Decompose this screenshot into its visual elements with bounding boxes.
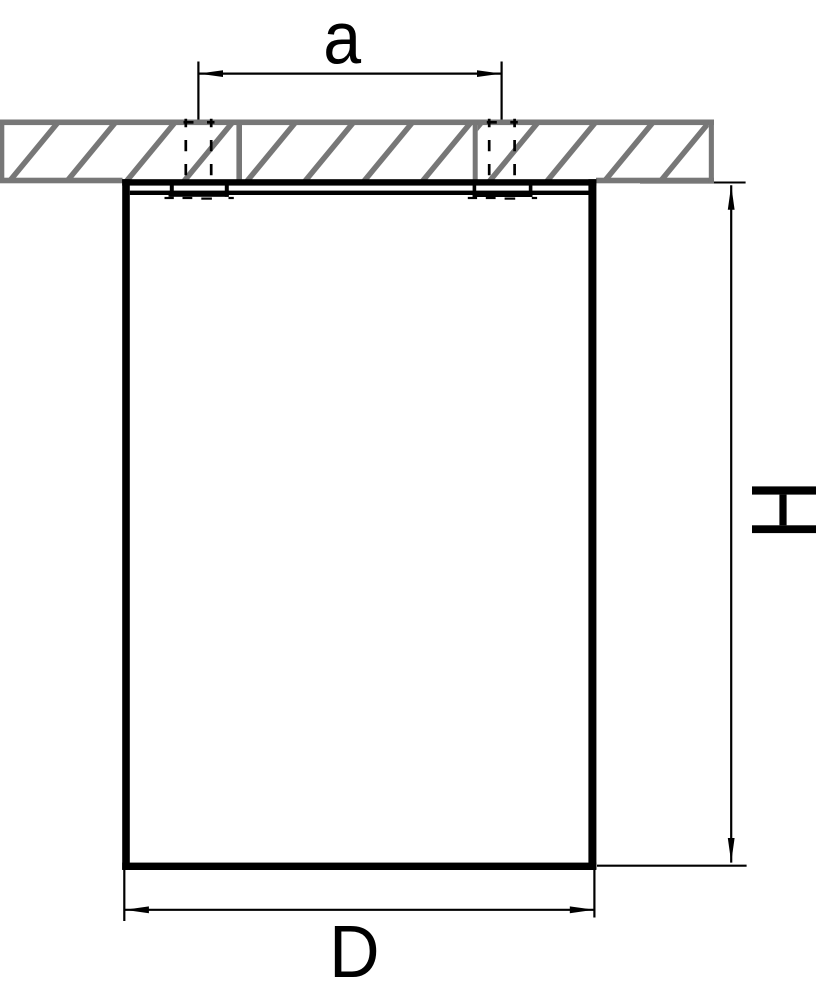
svg-text:a: a [323, 0, 361, 80]
svg-text:D: D [329, 911, 379, 993]
